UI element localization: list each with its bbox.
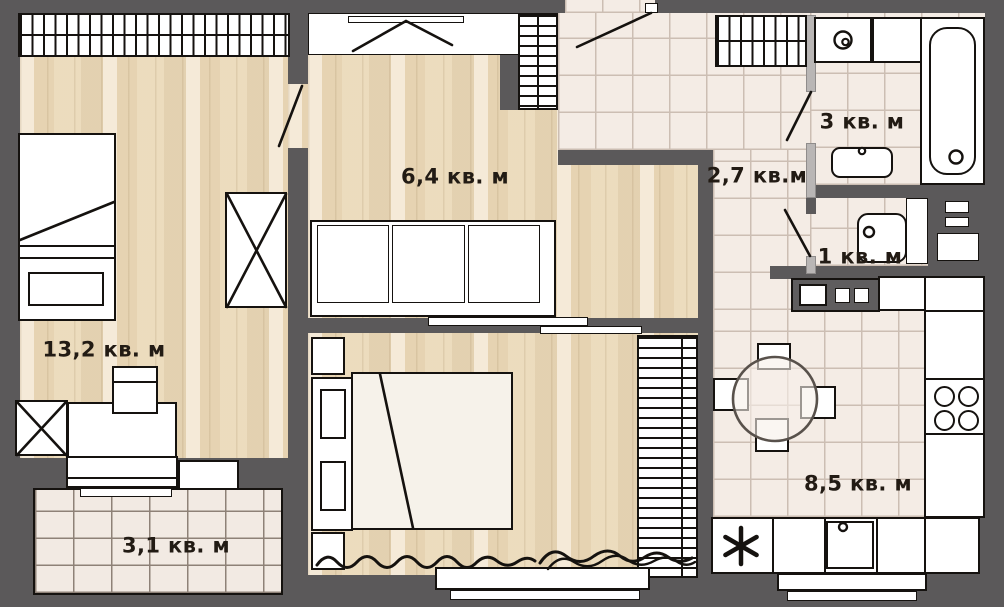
bed-pillow	[320, 461, 346, 511]
wc-door-leaf	[906, 198, 928, 264]
sliding-door-panel-1	[428, 317, 588, 326]
shaft-box-small-2	[945, 217, 969, 227]
stove-burner	[934, 410, 955, 431]
shaft-box-large	[937, 233, 979, 261]
balcony-window-sill	[80, 488, 172, 497]
nightstand-top	[311, 337, 345, 375]
storage-box-x	[15, 400, 68, 456]
bathroom-door-jamb-bottom	[806, 143, 816, 198]
shaft-box-small-1	[945, 201, 969, 213]
bathtub-basin	[929, 27, 976, 175]
stove-burner	[958, 386, 979, 407]
kitchen-counter-bottom	[711, 517, 980, 574]
single-bed-footer-line	[20, 245, 114, 247]
area-label-bathroom: 3 кв. м	[820, 112, 905, 133]
bed-headboard	[311, 377, 353, 531]
kitchen-window	[777, 573, 927, 591]
dining-chair-bottom	[755, 418, 789, 452]
single-bed-footer-line2	[20, 257, 114, 259]
bed-pillow	[320, 389, 346, 439]
kitchen-window-sill	[787, 591, 917, 601]
sofa-cushion	[468, 225, 540, 303]
bedroom-shelving-divider	[681, 337, 683, 576]
kitchen-dark-sink	[799, 284, 827, 306]
kitchen-sink	[826, 521, 874, 569]
bedroom-shelving	[637, 335, 698, 578]
bathroom-counter	[872, 17, 922, 63]
bedroom-window	[435, 567, 650, 590]
area-label-kitchen: 8,5 кв. м	[804, 474, 912, 495]
floor-plan: 13,2 кв. м 6,4 кв. м 3,1 кв. м 3 кв. м 2…	[0, 0, 1004, 607]
kitchen-counter-right	[924, 276, 985, 518]
balcony-window-frame-line	[68, 477, 176, 479]
counter-divider	[924, 519, 926, 572]
floor-entrance-threshold	[565, 0, 655, 13]
counter-divider	[926, 378, 983, 380]
counter-divider	[876, 519, 878, 572]
nightstand-bottom	[311, 532, 345, 570]
wc-door-jamb	[806, 256, 816, 274]
balcony-door	[178, 460, 239, 490]
kitchen-dark-box-2	[854, 288, 869, 303]
balcony-window	[66, 456, 178, 488]
dining-chair-top	[757, 343, 791, 370]
dining-chair-left	[713, 378, 749, 411]
sofa-cushion	[392, 225, 465, 303]
counter-divider	[926, 433, 983, 435]
double-bed	[351, 372, 513, 530]
area-label-hallway: 2,7 кв.м	[707, 166, 807, 187]
wardrobe-living	[225, 192, 287, 308]
wardrobe-rod	[348, 16, 464, 23]
counter-divider	[772, 519, 774, 572]
radiator-hallway	[715, 15, 807, 67]
stove-burner	[934, 386, 955, 407]
wall-living-door-jamb	[288, 76, 308, 84]
kitchen-dark-box-1	[835, 288, 850, 303]
sofa-cushion	[317, 225, 389, 303]
stove-burner	[958, 410, 979, 431]
sofa	[310, 220, 556, 317]
bathtub	[920, 17, 985, 185]
sliding-door-panel-2	[540, 326, 642, 334]
area-label-balcony: 3,1 кв. м	[122, 536, 230, 557]
bedroom-window-sill	[450, 590, 640, 600]
single-bed-pillow	[28, 272, 104, 306]
dining-chair-right	[800, 386, 836, 419]
desk-chair	[112, 366, 158, 414]
kitchen-counter-dark	[791, 278, 880, 312]
area-label-living: 13,2 кв. м	[42, 340, 165, 361]
window-radiator-living	[18, 13, 290, 57]
area-label-lounge: 6,4 кв. м	[401, 167, 509, 188]
area-label-wc: 1 кв. м	[818, 247, 903, 268]
single-bed	[18, 133, 116, 321]
counter-divider	[926, 310, 983, 312]
wall-bathroom-bottom	[806, 185, 985, 198]
wall-wc-left-top	[806, 198, 816, 214]
hall-shelving-divider	[537, 15, 539, 108]
bathroom-sink	[831, 147, 893, 178]
entrance-door-hinge	[645, 3, 658, 13]
desk-chair-back-line	[114, 381, 156, 383]
washing-machine	[814, 17, 872, 63]
wall-hall-lounge-horizontal	[558, 150, 713, 165]
floor-door-opening-living	[288, 84, 308, 148]
kitchen-counter-top	[878, 276, 926, 311]
hall-shelving	[518, 13, 558, 110]
